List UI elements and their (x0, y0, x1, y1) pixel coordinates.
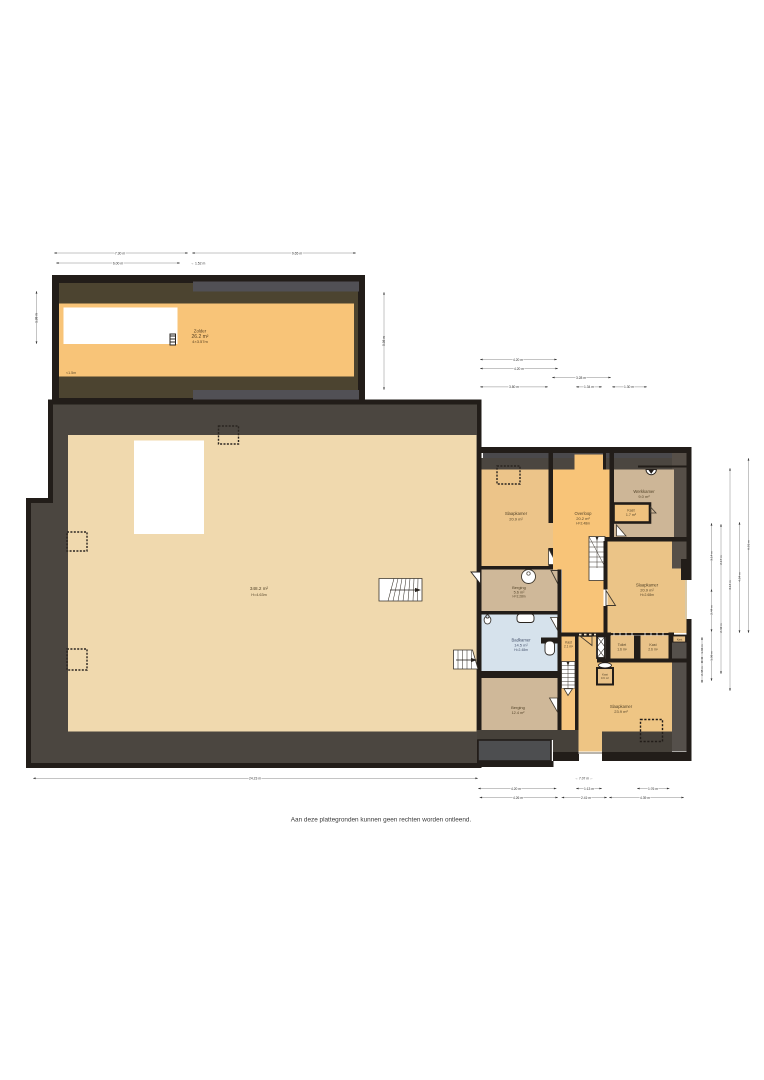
svg-text:0.6 m²: 0.6 m² (601, 676, 609, 680)
svg-text:9.0 m²: 9.0 m² (638, 494, 650, 499)
svg-text:2.1 m²: 2.1 m² (564, 645, 573, 649)
svg-text:4×3.57m: 4×3.57m (192, 339, 208, 344)
svg-text:12.4 m²: 12.4 m² (512, 711, 526, 715)
svg-text:2.42 m: 2.42 m (719, 623, 723, 633)
svg-text:H=2.48m: H=2.48m (576, 522, 590, 526)
svg-text:1.98 m: 1.98 m (34, 313, 38, 323)
svg-text:2.44 m: 2.44 m (709, 605, 713, 615)
svg-text:20.9 m²: 20.9 m² (509, 517, 523, 522)
svg-text:H=2.68m: H=2.68m (640, 593, 654, 597)
svg-text:Kast: Kast (677, 638, 683, 642)
svg-text:Aan deze plattegronden kunnen: Aan deze plattegronden kunnen geen recht… (291, 817, 472, 824)
svg-text:2.48 m: 2.48 m (700, 666, 704, 676)
svg-text:Kast: Kast (627, 509, 634, 513)
svg-text:Zolder: Zolder (194, 329, 207, 334)
svg-text:5.98 m: 5.98 m (382, 336, 386, 346)
svg-text:<1.5m: <1.5m (66, 371, 76, 375)
svg-text:1.36 m: 1.36 m (709, 651, 713, 661)
svg-text:3.80 m: 3.80 m (509, 385, 519, 389)
svg-text:3.14 m: 3.14 m (709, 551, 713, 561)
svg-text:4.39 m: 4.39 m (640, 796, 650, 800)
svg-text:1.76 m: 1.76 m (648, 787, 658, 791)
svg-text:24.23 m: 24.23 m (249, 777, 261, 781)
svg-text:→ 1.52 m: → 1.52 m (191, 261, 206, 265)
svg-text:Kast: Kast (649, 643, 656, 647)
svg-text:20.9 m²: 20.9 m² (640, 588, 654, 593)
svg-text:Berging: Berging (511, 705, 525, 710)
svg-text:4.04 m: 4.04 m (737, 572, 741, 582)
svg-text:6.01 m: 6.01 m (746, 540, 750, 550)
svg-text:1.13 m: 1.13 m (584, 787, 594, 791)
svg-text:14.5 m²: 14.5 m² (514, 643, 528, 648)
svg-text:7.30 m: 7.30 m (115, 251, 126, 255)
svg-text:3.28 m: 3.28 m (576, 376, 586, 380)
svg-text:Slaapkamer: Slaapkamer (505, 511, 528, 516)
svg-text:1.7 m²: 1.7 m² (626, 513, 637, 517)
svg-text:→ 7.07 m ←: → 7.07 m ← (575, 777, 594, 781)
svg-text:1.36 m: 1.36 m (700, 644, 704, 654)
svg-text:H=2.28m: H=2.28m (512, 595, 525, 599)
svg-text:4.20 m: 4.20 m (514, 367, 524, 371)
svg-text:1.34 m: 1.34 m (584, 385, 594, 389)
svg-text:23.9 m²: 23.9 m² (614, 709, 628, 714)
svg-text:Berging: Berging (512, 585, 526, 590)
svg-text:1.30 m: 1.30 m (624, 385, 634, 389)
svg-text:4.20 m: 4.20 m (511, 787, 521, 791)
svg-text:4.20 m: 4.20 m (513, 358, 523, 362)
svg-text:6.00 m: 6.00 m (113, 261, 124, 265)
svg-text:4.26 m: 4.26 m (513, 796, 523, 800)
svg-text:2.41 m: 2.41 m (581, 796, 591, 800)
svg-text:2.6 m²: 2.6 m² (648, 648, 658, 652)
svg-text:9.65 m: 9.65 m (292, 251, 303, 255)
svg-text:348.2 m²: 348.2 m² (250, 586, 269, 591)
svg-text:20.2 m²: 20.2 m² (576, 516, 590, 521)
svg-text:H=2.48m: H=2.48m (514, 648, 528, 652)
svg-text:H=4.63m: H=4.63m (251, 593, 267, 597)
svg-text:1.6 m²: 1.6 m² (617, 648, 627, 652)
svg-text:Toilet: Toilet (618, 643, 626, 647)
svg-text:2.17 m: 2.17 m (719, 555, 723, 565)
svg-text:3.14 m: 3.14 m (728, 580, 732, 590)
